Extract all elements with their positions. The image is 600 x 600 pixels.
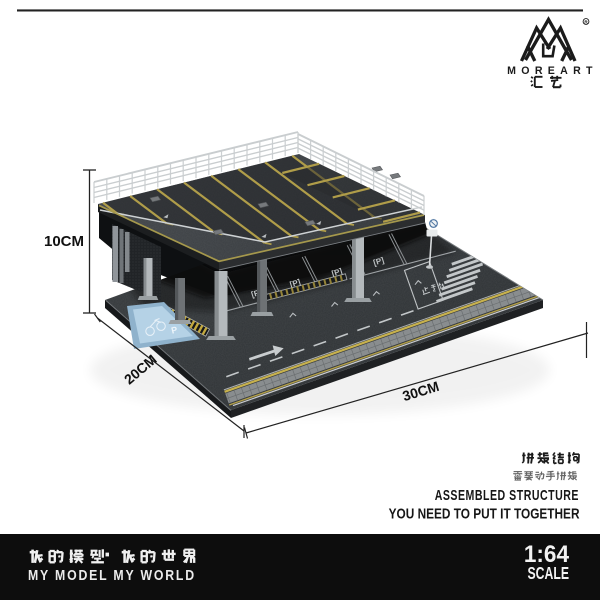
svg-text:MY MODEL MY WORLD: MY MODEL MY WORLD [28, 567, 196, 583]
svg-text:SCALE: SCALE [528, 564, 569, 584]
svg-text:10CM: 10CM [44, 233, 84, 250]
svg-text:ASSEMBLED STRUCTURE: ASSEMBLED STRUCTURE [435, 487, 579, 503]
svg-text:YOU NEED TO PUT IT TOGETHER: YOU NEED TO PUT IT TOGETHER [389, 505, 580, 522]
svg-text:MOREART: MOREART [507, 65, 598, 77]
